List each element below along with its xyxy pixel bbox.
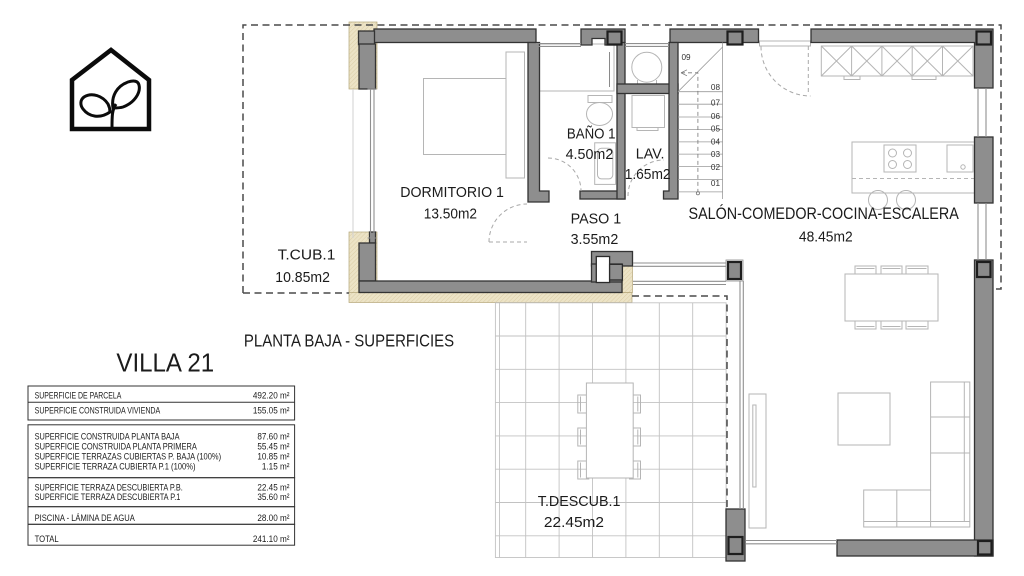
- svg-text:13.50m2: 13.50m2: [424, 206, 477, 223]
- svg-text:1.15 m²: 1.15 m²: [262, 461, 290, 472]
- svg-text:LAV.: LAV.: [636, 146, 665, 162]
- svg-text:155.05 m²: 155.05 m²: [253, 405, 290, 416]
- svg-text:28.00 m²: 28.00 m²: [257, 512, 289, 523]
- svg-text:VILLA 21: VILLA 21: [116, 348, 214, 377]
- svg-text:SUPERFICIE CONSTRUIDA VIVIENDA: SUPERFICIE CONSTRUIDA VIVIENDA: [35, 404, 161, 415]
- svg-text:T.CUB.1: T.CUB.1: [278, 247, 336, 264]
- svg-text:03: 03: [711, 150, 721, 159]
- svg-text:PLANTA BAJA - SUPERFICIES: PLANTA BAJA - SUPERFICIES: [244, 331, 454, 350]
- svg-text:09: 09: [682, 53, 692, 62]
- svg-text:BAÑO 1: BAÑO 1: [567, 125, 616, 142]
- svg-text:35.60 m²: 35.60 m²: [257, 492, 289, 503]
- svg-text:07: 07: [711, 99, 721, 108]
- svg-text:DORMITORIO 1: DORMITORIO 1: [400, 185, 504, 201]
- svg-text:PASO 1: PASO 1: [571, 211, 622, 227]
- svg-text:02: 02: [711, 163, 721, 172]
- svg-text:01: 01: [711, 179, 721, 188]
- svg-text:SUPERFICIE TERRAZA DESCUBIERTA: SUPERFICIE TERRAZA DESCUBIERTA P.1: [35, 491, 181, 502]
- svg-text:TOTAL: TOTAL: [35, 533, 59, 544]
- svg-text:05: 05: [711, 125, 721, 134]
- svg-text:PISCINA - LÁMINA DE AGUA: PISCINA - LÁMINA DE AGUA: [35, 512, 135, 523]
- svg-text:08: 08: [711, 83, 721, 92]
- svg-text:06: 06: [711, 112, 721, 121]
- svg-text:4.50m2: 4.50m2: [566, 147, 614, 163]
- svg-text:SUPERFICIE DE PARCELA: SUPERFICIE DE PARCELA: [35, 390, 122, 401]
- svg-text:SUPERFICIE TERRAZA CUBIERTA P.: SUPERFICIE TERRAZA CUBIERTA P.1 (100%): [35, 461, 196, 472]
- svg-text:04: 04: [711, 138, 721, 147]
- svg-text:10.85m2: 10.85m2: [275, 270, 330, 287]
- svg-text:241.10 m²: 241.10 m²: [253, 533, 290, 544]
- svg-text:SALÓN-COMEDOR-COCINA-ESCALERA: SALÓN-COMEDOR-COCINA-ESCALERA: [689, 203, 960, 223]
- svg-text:22.45m2: 22.45m2: [544, 514, 604, 531]
- svg-text:48.45m2: 48.45m2: [799, 229, 853, 246]
- svg-text:3.55m2: 3.55m2: [571, 232, 619, 248]
- svg-text:492.20 m²: 492.20 m²: [253, 390, 290, 401]
- svg-text:1.65m2: 1.65m2: [625, 166, 671, 182]
- svg-text:T.DESCUB.1: T.DESCUB.1: [538, 494, 621, 510]
